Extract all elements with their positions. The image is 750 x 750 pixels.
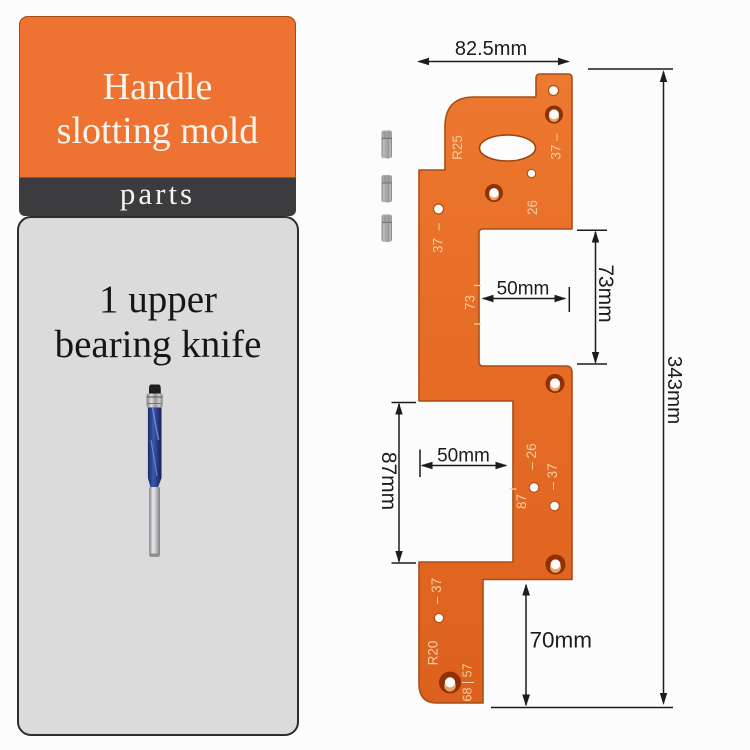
svg-text:26: 26 [525, 200, 540, 215]
svg-text:R20: R20 [426, 641, 441, 666]
svg-text:87mm: 87mm [377, 452, 400, 510]
svg-text:37 –: 37 – [431, 222, 446, 253]
svg-text:37 –: 37 – [549, 133, 564, 160]
svg-text:– 37: – 37 [545, 463, 560, 489]
svg-text:– 26: – 26 [524, 443, 539, 469]
svg-text:50mm: 50mm [437, 446, 490, 467]
svg-text:73mm: 73mm [594, 264, 617, 322]
svg-text:87: 87 [514, 494, 529, 509]
svg-text:73: 73 [463, 295, 478, 310]
svg-text:343mm: 343mm [663, 356, 686, 424]
svg-text:50mm: 50mm [497, 279, 550, 300]
svg-text:82.5mm: 82.5mm [455, 38, 527, 60]
svg-text:R25: R25 [450, 135, 465, 160]
svg-text:70mm: 70mm [530, 628, 593, 653]
svg-text:68 | 57: 68 | 57 [461, 663, 475, 701]
svg-text:– 37: – 37 [429, 578, 444, 604]
